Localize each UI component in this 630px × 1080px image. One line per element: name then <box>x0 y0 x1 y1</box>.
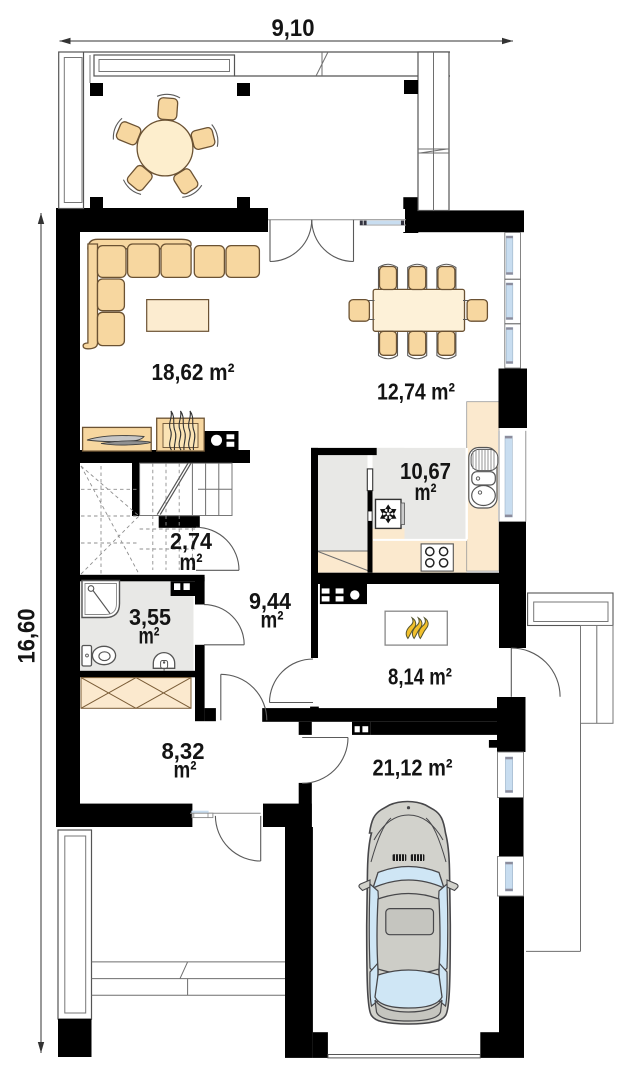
svg-text:9,10: 9,10 <box>272 15 315 42</box>
svg-text:m²: m² <box>415 479 437 505</box>
svg-text:m²: m² <box>139 623 160 649</box>
svg-text:16,60: 16,60 <box>14 609 41 664</box>
svg-text:m²: m² <box>261 607 284 633</box>
svg-text:m²: m² <box>174 756 197 782</box>
svg-text:8,14 m²: 8,14 m² <box>388 664 452 690</box>
svg-text:m²: m² <box>180 549 203 575</box>
svg-text:18,62 m²: 18,62 m² <box>152 359 235 385</box>
svg-text:21,12 m²: 21,12 m² <box>373 755 453 781</box>
svg-text:12,74 m²: 12,74 m² <box>377 379 455 405</box>
